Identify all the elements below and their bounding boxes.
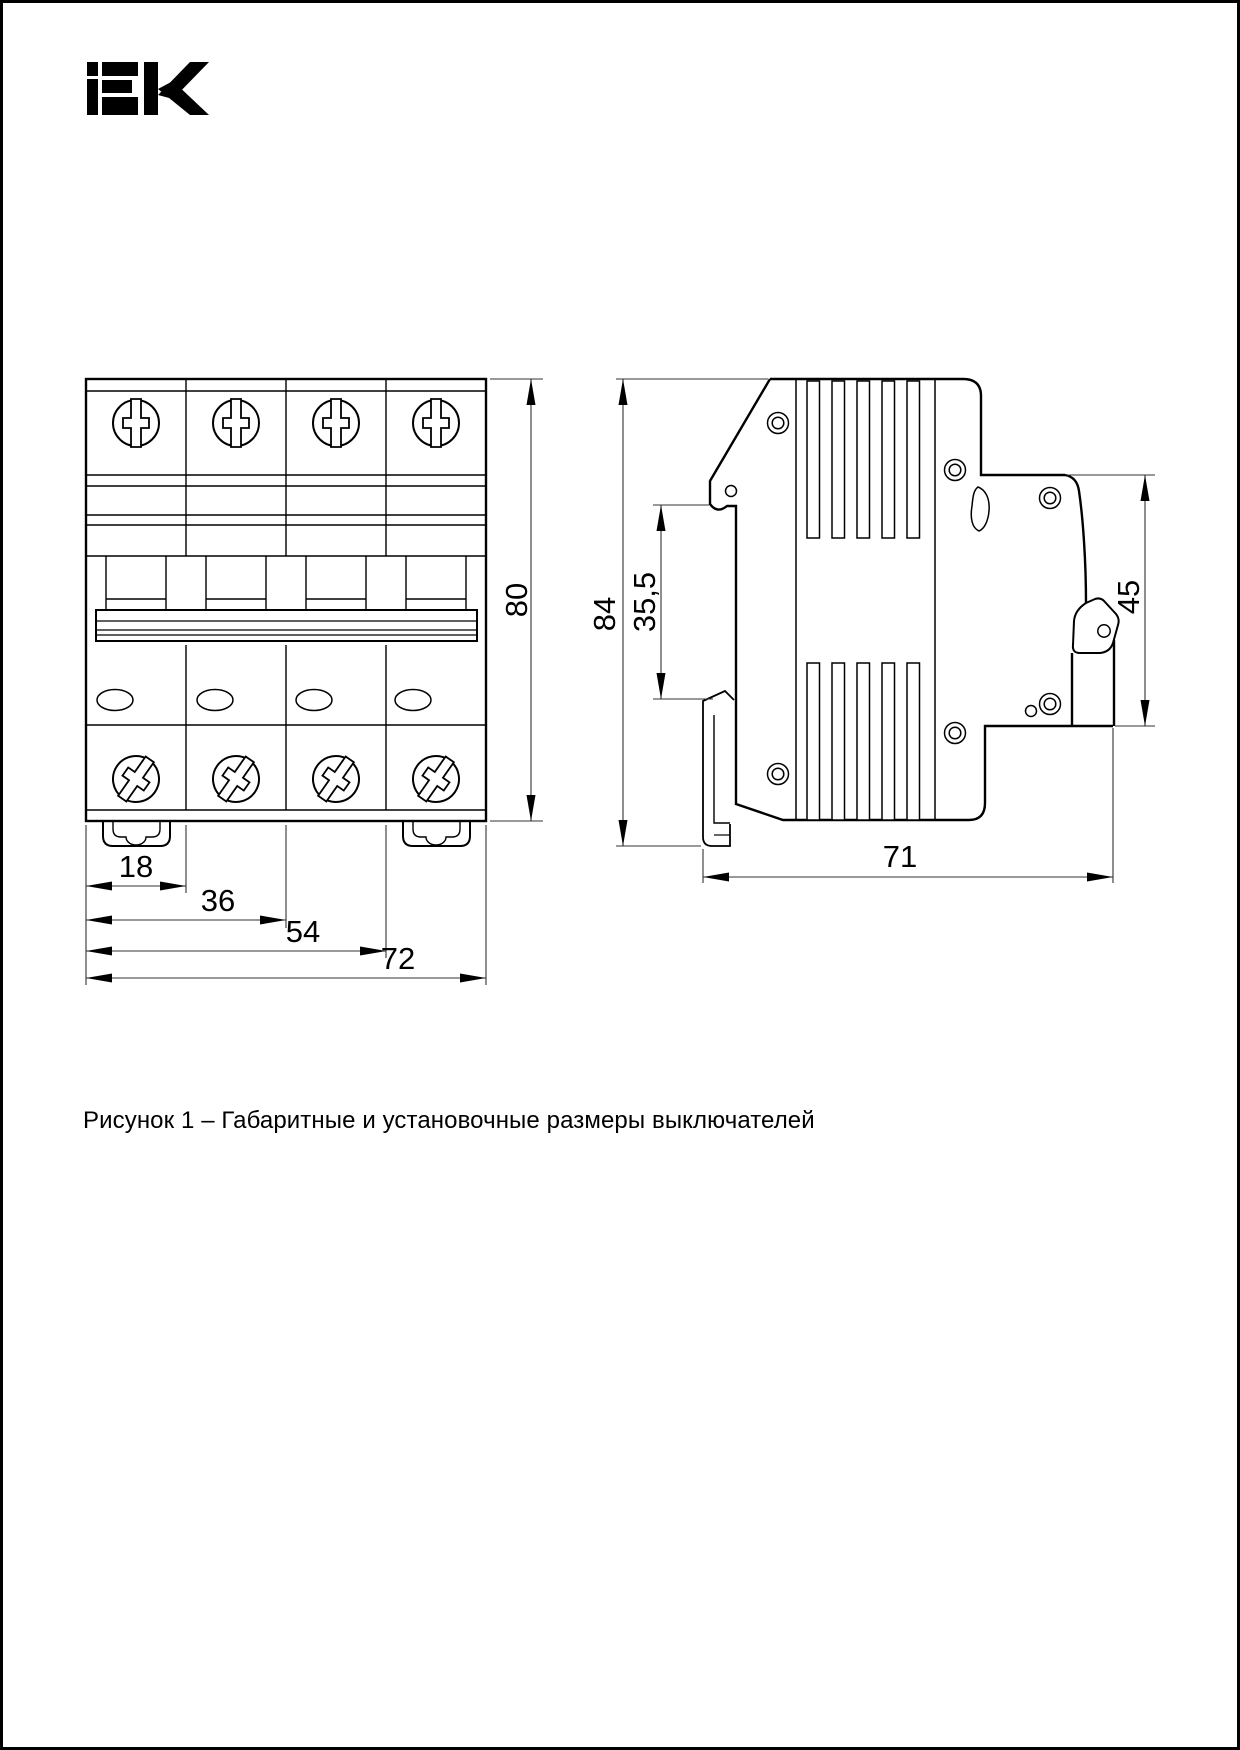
curved-slot (971, 487, 989, 531)
dim-label-71: 71 (883, 839, 917, 874)
side-view-drawing: 84 35,5 (587, 379, 1155, 883)
dim-label-35-5: 35,5 (627, 572, 662, 632)
toggle-bar (96, 610, 477, 641)
dim-label-36: 36 (201, 883, 235, 918)
dim-label-80: 80 (499, 583, 534, 617)
dim-label-84: 84 (587, 597, 622, 631)
dim-label-72: 72 (381, 941, 415, 976)
front-view-drawing: 18 36 54 72 80 (86, 379, 543, 985)
marking-windows (97, 690, 431, 711)
face-height-dimension: 45 (1067, 475, 1155, 726)
dim-label-45: 45 (1111, 580, 1146, 614)
datasheet-page: IEK (0, 0, 1240, 1750)
side-height-dimension: 84 (587, 379, 768, 846)
front-height-dimension: 80 (490, 379, 543, 821)
din-clip-side (703, 691, 734, 846)
toggle-openings (106, 556, 466, 610)
ventilation-slots (796, 379, 935, 820)
figure-caption: Рисунок 1 – Габаритные и установочные ра… (83, 1107, 815, 1135)
dim-label-54: 54 (286, 914, 320, 949)
din-offset-dimension: 35,5 (627, 505, 713, 699)
dim-label-18: 18 (119, 849, 153, 884)
front-width-dimensions: 18 36 54 72 (86, 825, 486, 985)
figure-1-drawing: 18 36 54 72 80 (3, 3, 1240, 1750)
